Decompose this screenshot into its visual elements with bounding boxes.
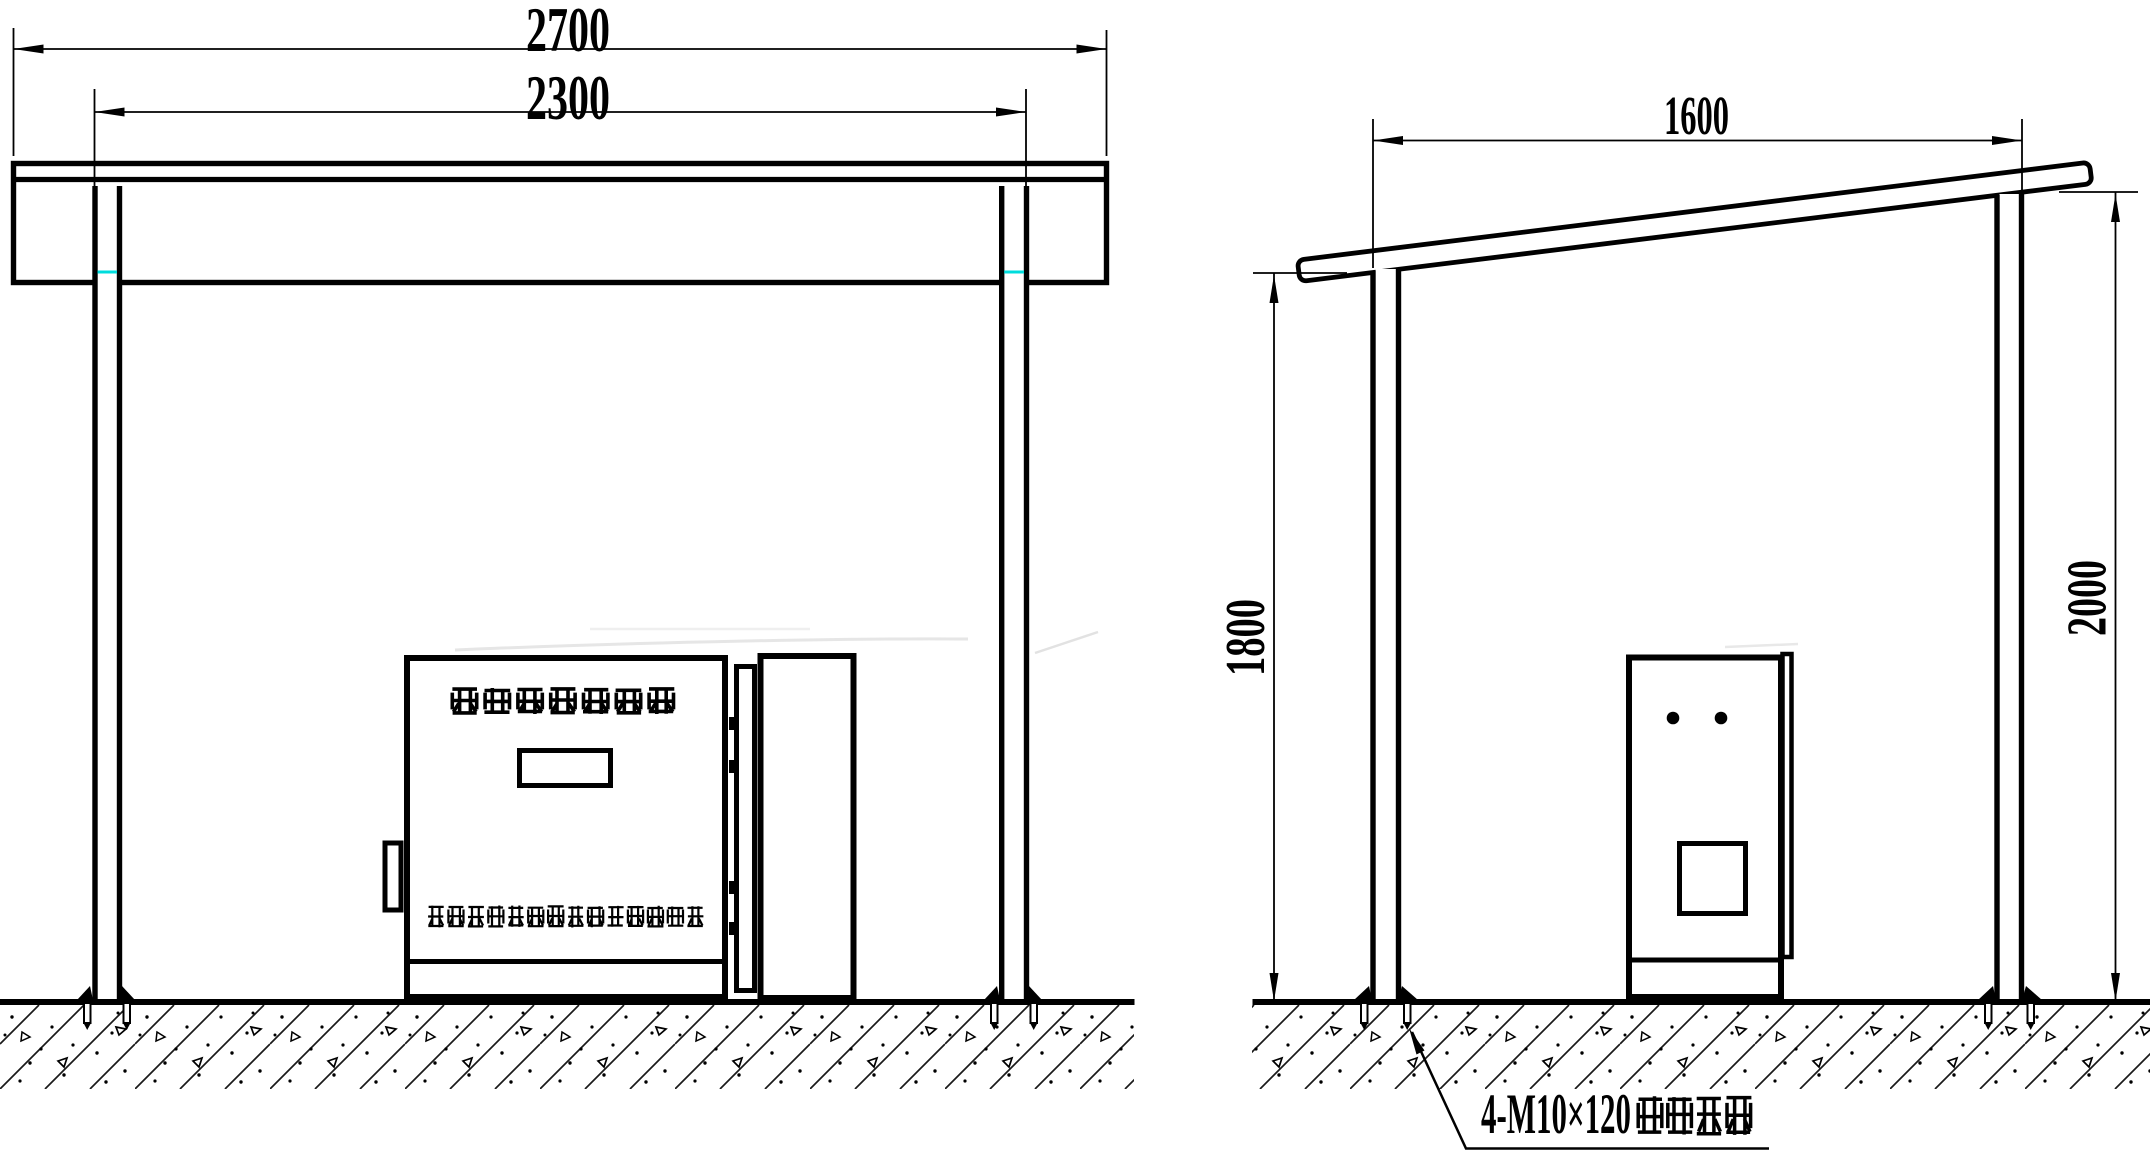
svg-text:2300: 2300 (526, 62, 610, 133)
svg-text:2000: 2000 (2057, 560, 2119, 636)
svg-text:4-M10×120: 4-M10×120 (1481, 1083, 1631, 1146)
svg-text:1800: 1800 (1215, 599, 1277, 676)
svg-text:1600: 1600 (1664, 85, 1729, 146)
svg-text:2700: 2700 (526, 0, 610, 65)
